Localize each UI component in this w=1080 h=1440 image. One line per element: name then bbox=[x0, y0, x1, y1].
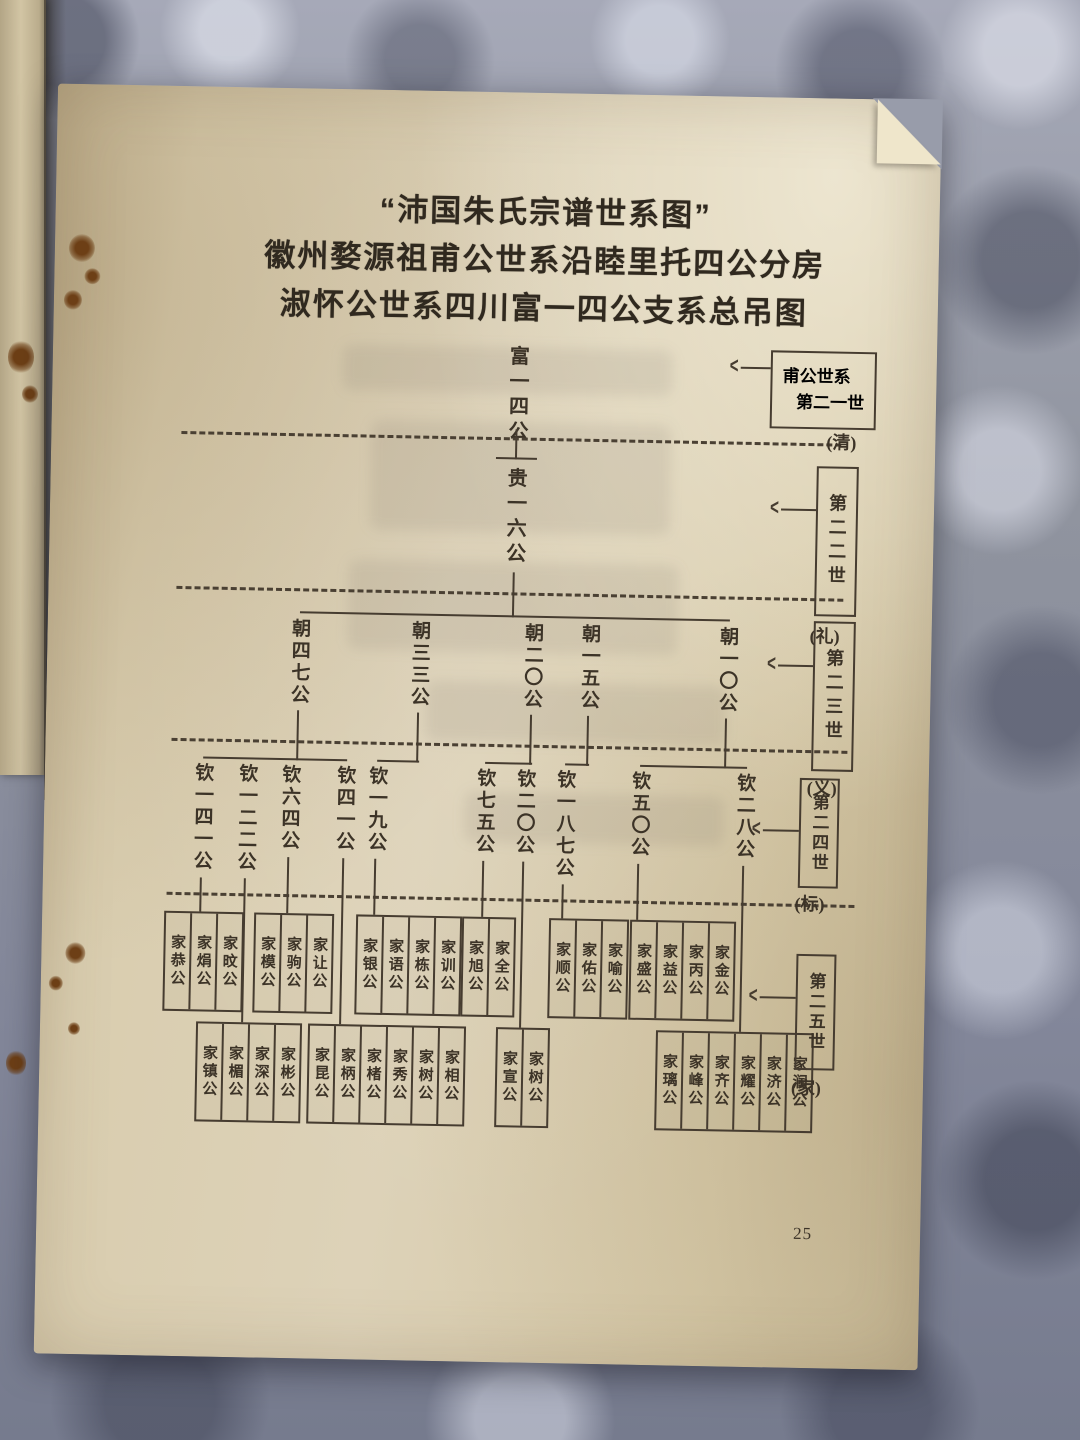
branch-bar bbox=[640, 765, 747, 769]
descendant-name: 家镇公 bbox=[198, 1044, 220, 1098]
descendant-name: 家恭公 bbox=[166, 934, 188, 988]
descendant-cell: 家相公 bbox=[436, 1028, 464, 1124]
ancestor-gen4: 钦一九公 bbox=[362, 766, 391, 855]
generation-divider bbox=[167, 892, 855, 908]
ancestor-gen4: 钦一二二公 bbox=[231, 763, 260, 873]
left-arrow-icon: < bbox=[748, 983, 757, 1009]
corner-fold-flap bbox=[877, 99, 942, 164]
descendant-name: 家银公 bbox=[358, 937, 380, 991]
connector-line bbox=[636, 864, 639, 920]
left-arrow-icon: < bbox=[752, 816, 761, 842]
descendant-name: 家顺公 bbox=[551, 941, 573, 995]
stain bbox=[64, 290, 82, 310]
ancestor-gen4: 钦七五公 bbox=[470, 768, 499, 857]
ancestor-gen3: 朝一〇公 bbox=[713, 626, 742, 715]
branch-bar bbox=[565, 763, 589, 765]
descendant-cell: 家栋公 bbox=[406, 917, 434, 1013]
pointer-line bbox=[778, 664, 813, 667]
stain bbox=[22, 385, 38, 403]
descendant-cell: 家全公 bbox=[486, 919, 514, 1015]
generation-note: (家) bbox=[791, 1074, 821, 1101]
descendant-name: 家昆公 bbox=[310, 1047, 332, 1101]
connector-line bbox=[286, 857, 289, 913]
descendant-cell: 家顺公 bbox=[549, 920, 575, 1016]
title-block: “沛国朱氏宗谱世系图” 徽州婺源祖甫公世系沿睦里托四公分房 淑怀公世系四川富一四… bbox=[143, 181, 946, 340]
generation-label-line2: 第二一世 bbox=[782, 390, 864, 418]
descendant-name: 家峰公 bbox=[684, 1054, 706, 1108]
connector-line bbox=[296, 710, 299, 760]
descendant-cell: 家柄公 bbox=[332, 1026, 360, 1122]
descendant-cell: 家镇公 bbox=[196, 1023, 222, 1119]
descendant-name: 家璃公 bbox=[658, 1053, 680, 1107]
descendant-cell: 家耀公 bbox=[732, 1034, 760, 1130]
descendant-cell: 家深公 bbox=[246, 1024, 274, 1120]
connector-line bbox=[561, 884, 564, 918]
descendant-name: 家全公 bbox=[490, 940, 512, 994]
generation-label-box: 第二三世 bbox=[811, 621, 856, 772]
ancestor-gen3: 朝二〇公 bbox=[518, 623, 547, 712]
descendant-cell: 家训公 bbox=[432, 918, 460, 1014]
bleed-through bbox=[464, 791, 725, 846]
generation-label: 第二二世 bbox=[823, 493, 851, 589]
descendant-name: 家盛公 bbox=[632, 943, 654, 997]
descendant-name: 家齐公 bbox=[710, 1054, 732, 1108]
stain bbox=[8, 340, 34, 374]
descendant-group: 家旭公 家全公 bbox=[460, 916, 516, 1017]
descendant-cell: 家金公 bbox=[706, 923, 734, 1019]
descendant-cell: 家焆公 bbox=[188, 913, 216, 1009]
descendant-cell: 家语公 bbox=[380, 917, 408, 1013]
descendant-cell: 家楣公 bbox=[220, 1024, 248, 1120]
generation-label-box: 第二二世 bbox=[814, 466, 859, 617]
descendant-name: 家焆公 bbox=[192, 934, 214, 988]
descendant-cell: 家彬公 bbox=[272, 1025, 300, 1121]
descendant-cell: 家树公 bbox=[520, 1030, 548, 1126]
stain bbox=[68, 1022, 80, 1035]
ancestor-gen4: 钦一四一公 bbox=[187, 762, 216, 872]
pointer-line bbox=[741, 367, 771, 370]
descendant-name: 家深公 bbox=[250, 1045, 272, 1099]
left-arrow-icon: < bbox=[770, 495, 779, 521]
descendant-cell: 家旭公 bbox=[462, 919, 488, 1015]
left-arrow-icon: < bbox=[767, 651, 776, 677]
descendant-cell: 家驹公 bbox=[278, 915, 306, 1011]
descendant-name: 家喻公 bbox=[603, 942, 625, 996]
pointer-line bbox=[763, 829, 799, 832]
descendant-cell: 家秀公 bbox=[384, 1027, 412, 1123]
ancestor-gen4: 钦四一公 bbox=[330, 765, 359, 854]
descendant-cell: 家恭公 bbox=[164, 913, 190, 1009]
connector-line bbox=[373, 859, 376, 915]
descendant-cell: 家齐公 bbox=[706, 1033, 734, 1129]
descendant-name: 家金公 bbox=[710, 944, 732, 998]
ancestor-gen4: 钦五〇公 bbox=[625, 771, 654, 860]
descendant-cell: 家昆公 bbox=[308, 1026, 334, 1122]
generation-label-box: 甫公世系 第二一世 bbox=[770, 350, 877, 430]
generation-label-box: 第二四世 bbox=[798, 778, 840, 889]
stain bbox=[6, 1050, 26, 1076]
ancestor-gen4: 钦二〇公 bbox=[510, 768, 539, 857]
stain bbox=[49, 976, 63, 991]
connector-line bbox=[739, 866, 744, 1032]
descendant-cell: 家模公 bbox=[254, 915, 280, 1011]
descendant-group: 家盛公 家益公 家丙公 家金公 bbox=[628, 920, 736, 1022]
descendant-name: 家训公 bbox=[436, 939, 458, 993]
descendant-cell: 家旼公 bbox=[214, 914, 242, 1010]
descendant-cell: 家让公 bbox=[304, 915, 332, 1011]
descendant-name: 家栋公 bbox=[410, 938, 432, 992]
descendant-name: 家佑公 bbox=[577, 942, 599, 996]
pointer-line bbox=[781, 509, 816, 512]
pointer-line bbox=[760, 996, 796, 999]
generation-label: 第二三世 bbox=[820, 648, 848, 744]
descendant-group: 家恭公 家焆公 家旼公 bbox=[162, 911, 244, 1013]
descendant-cell: 家宣公 bbox=[496, 1029, 522, 1125]
branch-bar bbox=[485, 762, 532, 765]
page-number: 25 bbox=[793, 1224, 812, 1244]
descendant-name: 家语公 bbox=[384, 938, 406, 992]
descendant-name: 家模公 bbox=[256, 936, 278, 990]
descendant-cell: 家峰公 bbox=[680, 1033, 708, 1129]
descendant-cell: 家佑公 bbox=[573, 921, 601, 1017]
branch-bar bbox=[377, 760, 419, 763]
stain bbox=[69, 234, 96, 262]
descendant-name: 家楣公 bbox=[224, 1045, 246, 1099]
descendant-name: 家树公 bbox=[524, 1051, 546, 1105]
descendant-group: 家顺公 家佑公 家喻公 bbox=[547, 918, 629, 1020]
descendant-cell: 家楮公 bbox=[358, 1027, 386, 1123]
connector-line bbox=[724, 718, 727, 768]
genealogy-page: “沛国朱氏宗谱世系图” 徽州婺源祖甫公世系沿睦里托四公分房 淑怀公世系四川富一四… bbox=[34, 84, 942, 1371]
generation-note: (标) bbox=[794, 890, 824, 917]
descendant-name: 家旭公 bbox=[464, 940, 486, 994]
descendant-group: 家模公 家驹公 家让公 bbox=[252, 912, 334, 1014]
generation-label-line1: 甫公世系 bbox=[782, 364, 864, 392]
descendant-name: 家相公 bbox=[440, 1049, 462, 1103]
photo-of-genealogy-page: { "colors": { "ink": "#463c30", "paper":… bbox=[0, 0, 1080, 1440]
connector-line bbox=[481, 861, 484, 917]
connector-line bbox=[416, 713, 419, 763]
connector-line bbox=[199, 877, 202, 911]
descendant-cell: 家益公 bbox=[654, 922, 682, 1018]
descendant-name: 家济公 bbox=[762, 1055, 784, 1109]
generation-label: 第二五世 bbox=[802, 972, 829, 1052]
descendant-name: 家旼公 bbox=[218, 935, 240, 989]
descendant-name: 家宣公 bbox=[498, 1050, 520, 1104]
generation-label-box: 第二五世 bbox=[794, 954, 836, 1071]
descendant-name: 家彬公 bbox=[276, 1046, 298, 1100]
descendant-name: 家驹公 bbox=[282, 936, 304, 990]
descendant-name: 家楮公 bbox=[362, 1048, 384, 1102]
ancestor-gen3: 朝四七公 bbox=[285, 618, 314, 707]
descendant-cell: 家璃公 bbox=[656, 1032, 682, 1128]
connector-line bbox=[339, 858, 344, 1024]
descendant-cell: 家丙公 bbox=[680, 923, 708, 1019]
ancestor-gen3: 朝三三公 bbox=[405, 620, 434, 709]
stain bbox=[84, 268, 100, 284]
descendant-name: 家丙公 bbox=[684, 944, 706, 998]
descendant-name: 家柄公 bbox=[336, 1047, 358, 1101]
descendant-cell: 家银公 bbox=[356, 916, 382, 1012]
descendant-name: 家益公 bbox=[658, 943, 680, 997]
descendant-cell: 家喻公 bbox=[599, 921, 627, 1017]
descendant-group: 家璃公 家峰公 家齐公 家耀公 家济公 家润公 bbox=[654, 1030, 814, 1133]
descendant-cell: 家济公 bbox=[758, 1034, 786, 1130]
descendant-name: 家耀公 bbox=[736, 1055, 758, 1109]
connector-line bbox=[519, 862, 524, 1028]
descendant-group: 家昆公 家柄公 家楮公 家秀公 家树公 家相公 bbox=[306, 1024, 466, 1127]
descendant-name: 家树公 bbox=[414, 1049, 436, 1103]
ancestor-gen4: 钦一八七公 bbox=[549, 769, 578, 879]
descendant-group: 家银公 家语公 家栋公 家训公 bbox=[354, 914, 462, 1016]
descendant-name: 家秀公 bbox=[388, 1048, 410, 1102]
generation-note: (清) bbox=[826, 428, 856, 455]
descendant-name: 家让公 bbox=[308, 937, 330, 991]
descendant-group: 家镇公 家楣公 家深公 家彬公 bbox=[194, 1021, 302, 1123]
left-arrow-icon: < bbox=[730, 353, 739, 379]
ancestor-gen2: 贵一六公 bbox=[499, 467, 530, 568]
descendant-cell: 家树公 bbox=[410, 1028, 438, 1124]
stain bbox=[65, 942, 85, 964]
descendant-cell: 家盛公 bbox=[630, 922, 656, 1018]
branch-bar bbox=[203, 756, 347, 761]
generation-label: 第二四世 bbox=[806, 793, 833, 873]
descendant-group: 家宣公 家树公 bbox=[494, 1027, 550, 1128]
ancestor-gen4: 钦六四公 bbox=[275, 764, 304, 853]
ancestor-gen3: 朝一五公 bbox=[575, 624, 604, 713]
